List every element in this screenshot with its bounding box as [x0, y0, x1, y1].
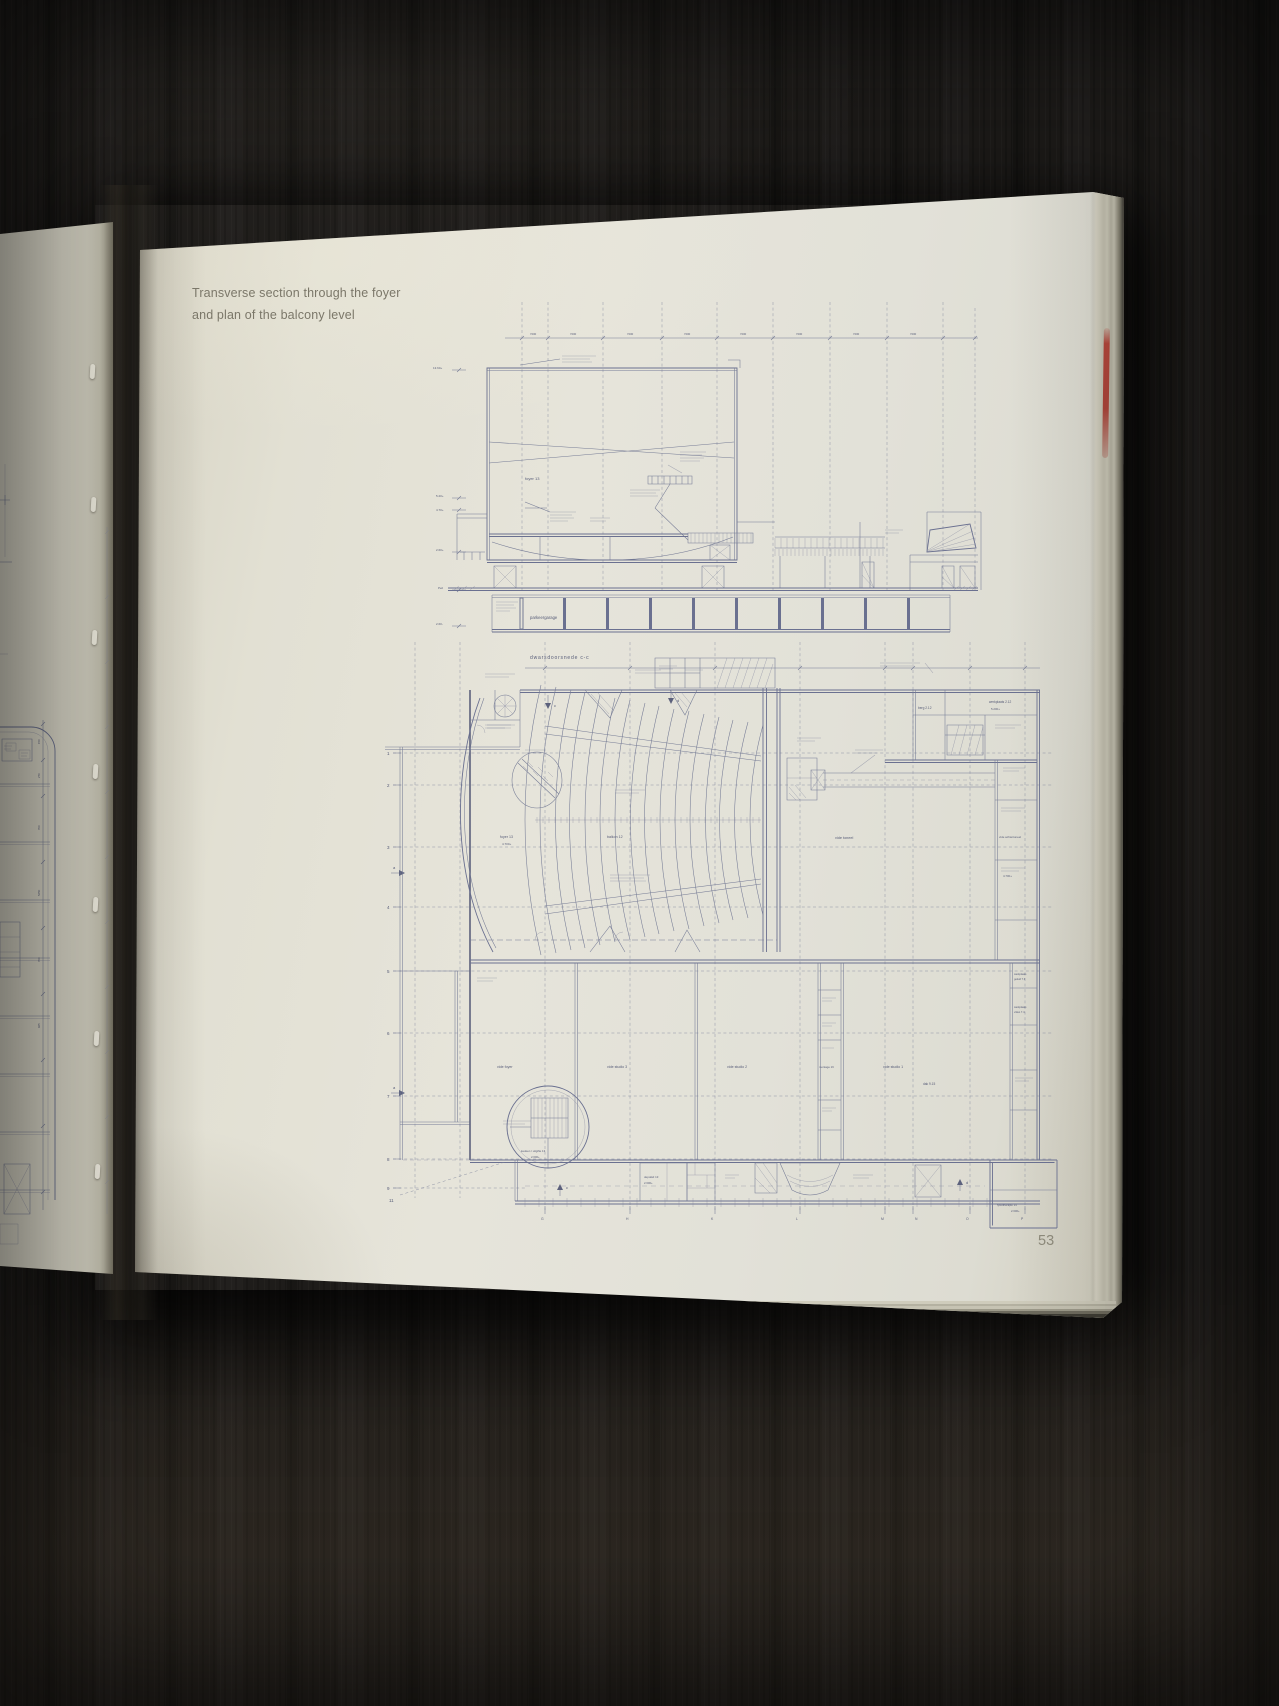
- grid-row: 7: [387, 1094, 390, 1099]
- section-right-annex: [737, 512, 981, 590]
- page-title-line1: Transverse section through the foyer: [192, 282, 401, 304]
- room-keuken: keuken / uitgifte 13: [521, 1149, 546, 1153]
- grid-row: 9: [387, 1186, 390, 1191]
- room-berg: berg 2.12: [918, 706, 932, 710]
- plan-drawing: 1 2 3 4 5 6 7 8 9 11 G H K L M N O P c: [385, 630, 1065, 1230]
- page-number: 53: [1038, 1233, 1054, 1249]
- grid-row: 6: [387, 1031, 390, 1036]
- room-wp-video-2: video 7.4: [1014, 1010, 1025, 1014]
- room-werkplaats: werkplaats 2.12: [989, 700, 1012, 704]
- grid-letter: H: [626, 1217, 629, 1221]
- marker-d-bottom: d: [966, 1180, 968, 1185]
- grid-row: 8: [387, 1157, 390, 1162]
- grid-letter: K: [711, 1217, 714, 1221]
- grid-row: 1: [387, 751, 390, 756]
- section-hall: foyer 13: [487, 356, 753, 588]
- grid-letter: N: [915, 1217, 918, 1221]
- dim-label: 150: [37, 739, 41, 744]
- room-wp-geluid-1: werkplaats: [1014, 972, 1027, 976]
- room-depot: depotkd 13: [644, 1175, 659, 1179]
- level: Peil: [438, 586, 443, 590]
- dim: 7200: [570, 332, 577, 336]
- section-grid-lines: [522, 302, 975, 590]
- level: 2.60+: [436, 548, 444, 552]
- section-left-annex: [457, 514, 487, 560]
- left-fragment-walls: [0, 464, 55, 1200]
- left-fragment-room-details: [0, 739, 32, 1244]
- grid-letter: P: [1021, 1217, 1024, 1221]
- grid-letter: M: [881, 1217, 884, 1221]
- room-vide-studio3: vide studio 3: [607, 1065, 627, 1069]
- level-keuken: 2.600+: [531, 1155, 540, 1159]
- dim: 7200: [740, 332, 747, 336]
- dim-label: 700: [37, 957, 41, 962]
- page-title: Transverse section through the foyer and…: [192, 282, 401, 326]
- dim: 7200: [627, 332, 634, 336]
- garage-label: parkeergarage: [530, 615, 558, 620]
- room-montage: montage 16: [819, 1065, 834, 1069]
- level-fysio: 2.600+: [1011, 1209, 1020, 1213]
- grid-row: 4: [387, 905, 390, 910]
- section-drawing: 7200 7200 7200 7200 7200 7200 7200 7200 …: [430, 290, 990, 670]
- section-foyer-label: foyer 13: [525, 476, 540, 481]
- room-vide-achtertoneel: vide achtertoneel: [999, 835, 1021, 839]
- level-foyer: 4.700+: [502, 842, 512, 846]
- dim: 7200: [853, 332, 860, 336]
- level-rechts: 4.700+: [1003, 874, 1012, 878]
- room-wp-geluid-2: geluid 7.3: [1014, 977, 1026, 981]
- marker-a: a: [393, 865, 396, 870]
- grid-row: 5: [387, 969, 390, 974]
- dim-label: 925: [37, 1023, 41, 1028]
- dim: 7200: [684, 332, 691, 336]
- level-werkplaats: 5.200+: [991, 707, 1000, 711]
- room-vide-studio1: vide studio 1: [883, 1065, 903, 1069]
- plan-balcony-seating: balkon 12: [525, 685, 780, 955]
- level: 4.70+: [436, 508, 444, 512]
- dim: 7200: [910, 332, 917, 336]
- level: 13.60+: [433, 366, 443, 370]
- room-fysio: fysiotherapie 14: [997, 1203, 1017, 1207]
- room-foyer: foyer 13: [500, 835, 513, 839]
- grid-row-11: 11: [389, 1198, 394, 1203]
- grid-letter: O: [966, 1217, 969, 1221]
- room-dak: dak 9.15: [923, 1082, 935, 1086]
- room-vide-studio2: vide studio 2: [727, 1065, 747, 1069]
- dim: 7200: [530, 332, 537, 336]
- grid-letter: L: [796, 1217, 798, 1221]
- section-dimension-line: 7200 7200 7200 7200 7200 7200 7200 7200: [505, 332, 978, 340]
- dim-label: 700: [37, 825, 41, 830]
- plan-annotation-squiggles: [477, 663, 1025, 981]
- page-title-line2: and plan of the balcony level: [192, 304, 401, 326]
- plan-foyer-curve: foyer 13 4.700+: [460, 698, 531, 1124]
- grid-letter: G: [541, 1217, 544, 1221]
- plan-middle-wall: [470, 932, 1040, 963]
- marker-a2: a: [393, 1085, 396, 1090]
- plan-grid-letters: G H K L M N O P: [541, 1206, 1025, 1221]
- level: 5.20+: [436, 494, 444, 498]
- marker-c-bottom: c: [566, 1185, 568, 1190]
- dim-label: 5250: [37, 889, 41, 896]
- plan-grid: 1 2 3 4 5 6 7 8 9 11: [387, 642, 1053, 1210]
- plan-circular-stair: keuken / uitgifte 13 2.600+: [507, 1086, 589, 1168]
- room-balkon: balkon 12: [607, 835, 623, 839]
- section-level-marks: 13.60+ 5.20+ 4.70+ 2.60+ Peil 2.60-: [433, 366, 466, 628]
- room-vide-foyer: vide foyer: [497, 1065, 513, 1069]
- dim: 7200: [796, 332, 803, 336]
- plan-stage-area: vide toneel vide achtertoneel 4.700+: [787, 750, 1037, 960]
- section-ground-and-garage: parkeergarage: [448, 586, 978, 632]
- grid-row: 2: [387, 783, 390, 788]
- plan-corridor: [400, 1160, 1040, 1207]
- garage-columns: [520, 598, 910, 629]
- dim-label: 270: [37, 773, 41, 778]
- plan-top-right-rooms: berg 2.12 werkplaats 2.12 5.200+: [885, 690, 1037, 763]
- left-page-plan-fragment: 150 270 700 5250 700 925: [0, 222, 115, 1274]
- room-wp-video-1: werkplaats: [1014, 1005, 1027, 1009]
- grid-row: 3: [387, 845, 390, 850]
- level-depot: 2.600+: [644, 1181, 653, 1185]
- room-vide-toneel: vide toneel: [835, 836, 854, 840]
- plan-lower-rooms: vide foyer vide studio 3 vide studio 2 m…: [497, 963, 1037, 1160]
- book-photo: 150 270 700 5250 700 925: [0, 0, 1279, 1706]
- marker-c: c: [554, 703, 556, 708]
- plan-exterior-walls: [385, 690, 1040, 1160]
- level: 2.60-: [436, 622, 443, 626]
- plan-bottom-rooms: depotkd 13 2.600+ fysiotherapie 14 2.600…: [640, 1160, 1057, 1228]
- left-fragment-wall-stubs: [0, 784, 50, 1193]
